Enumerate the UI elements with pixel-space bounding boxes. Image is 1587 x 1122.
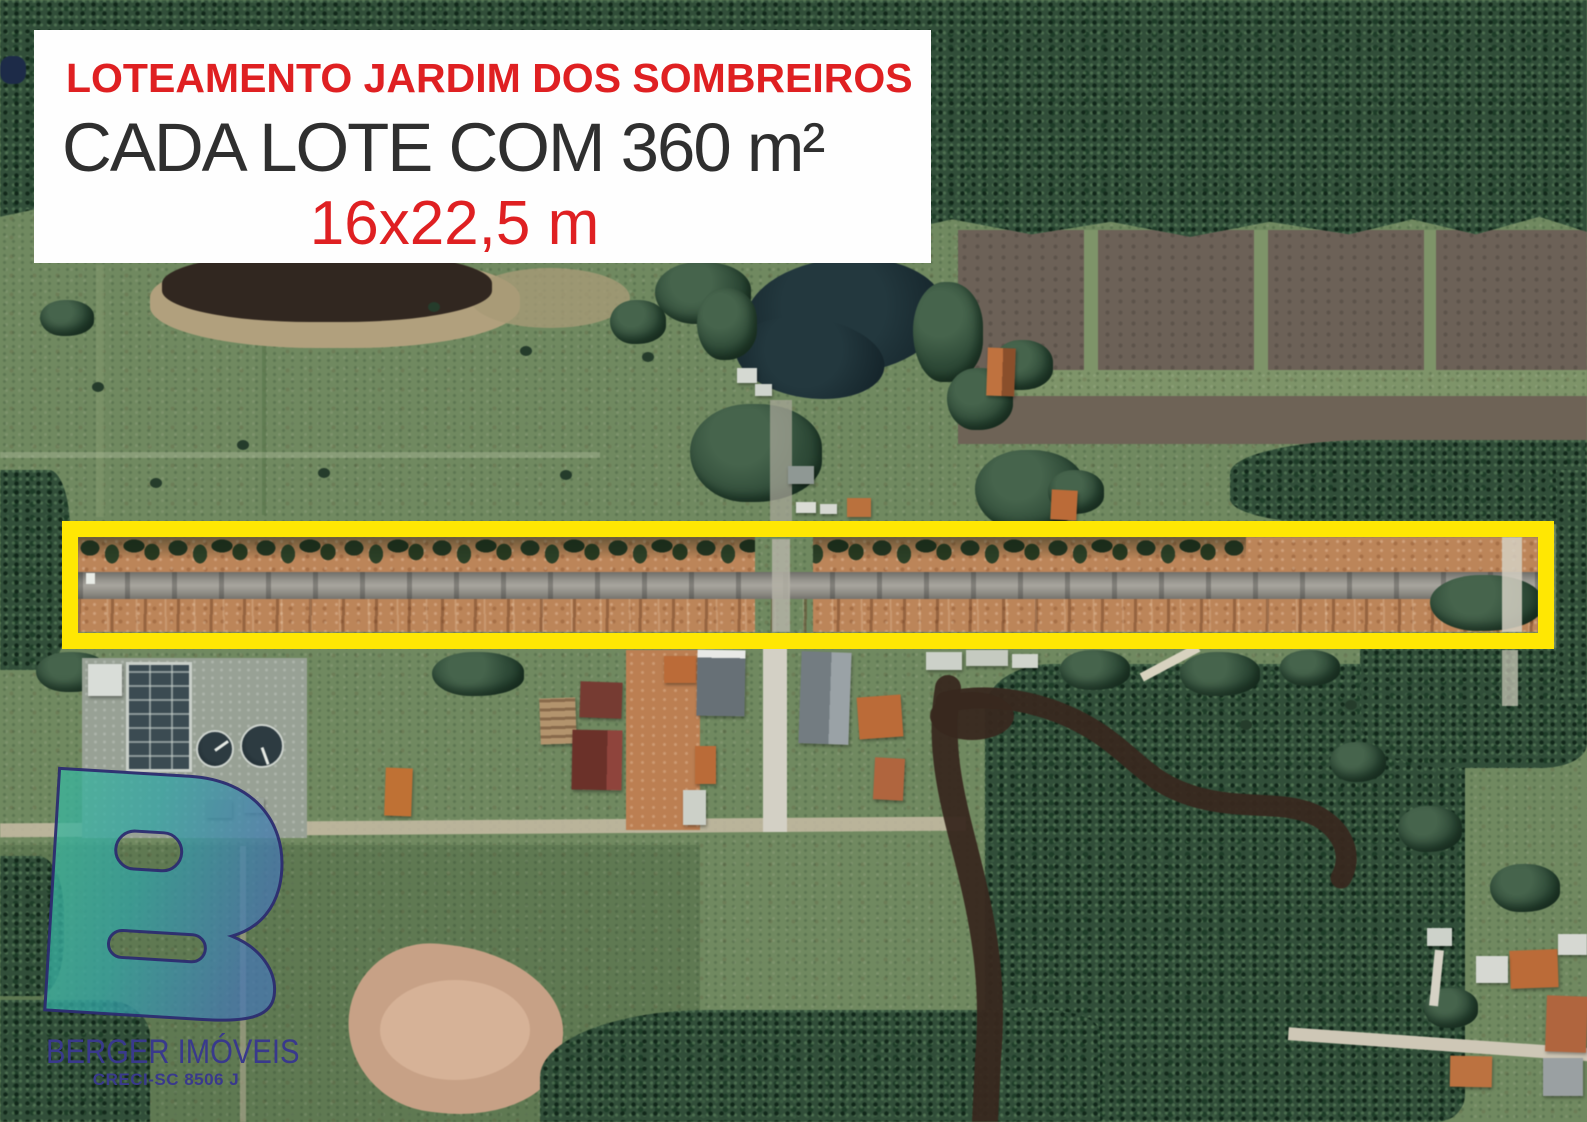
development-name: LOTEAMENTO JARDIM DOS SOMBREIROS: [66, 54, 931, 102]
lot-strip-highlight: [62, 521, 1554, 649]
listing-image: LOTEAMENTO JARDIM DOS SOMBREIROS CADA LO…: [0, 0, 1587, 1122]
agency-name: BERGER IMÓVEIS: [46, 1034, 304, 1070]
lot-dimensions-text: 16x22,5 m: [6, 189, 903, 259]
agency-logo: BERGER IMÓVEIS CRECI-SC 8506 J: [0, 750, 340, 1122]
logo-b-monogram: [34, 761, 295, 1032]
info-card: LOTEAMENTO JARDIM DOS SOMBREIROS CADA LO…: [34, 30, 931, 263]
agency-registration: CRECI-SC 8506 J: [76, 1070, 256, 1090]
lot-area-text: CADA LOTE COM 360 m²: [62, 108, 931, 187]
